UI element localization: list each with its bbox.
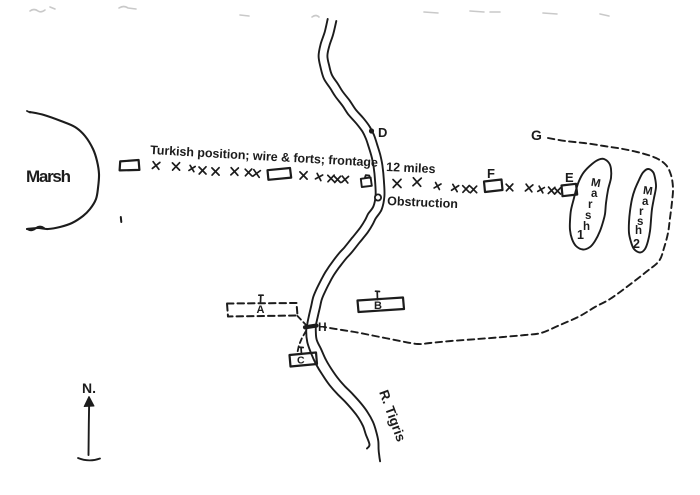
svg-text:B: B [374, 300, 382, 312]
svg-text:h: h [635, 225, 642, 237]
svg-text:h: h [583, 221, 590, 233]
svg-text:C: C [297, 355, 305, 367]
svg-text:N.: N. [82, 380, 96, 396]
svg-text:A: A [257, 304, 265, 316]
svg-text:H: H [318, 320, 327, 334]
svg-text:D: D [378, 125, 387, 140]
svg-text:F: F [487, 166, 495, 181]
svg-text:G: G [531, 127, 542, 143]
svg-text:2: 2 [633, 237, 640, 251]
svg-text:Marsh: Marsh [26, 167, 71, 186]
svg-text:E: E [565, 170, 574, 185]
svg-text:12 miles: 12 miles [386, 160, 436, 176]
svg-text:1: 1 [577, 228, 584, 242]
